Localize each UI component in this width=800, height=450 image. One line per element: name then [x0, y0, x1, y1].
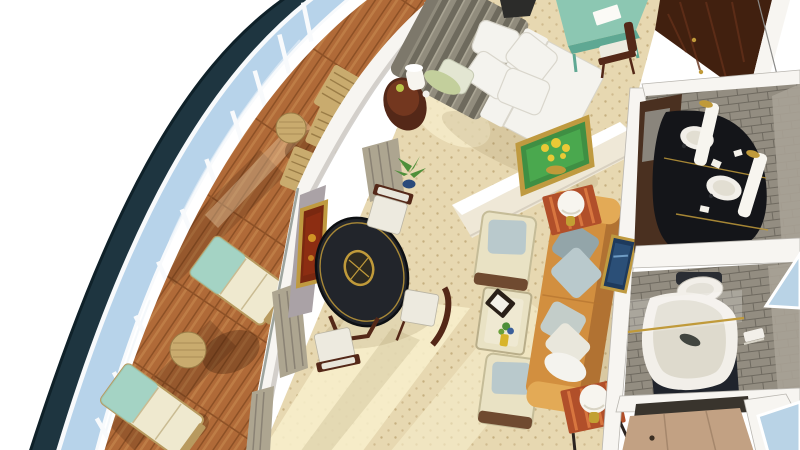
- glass-tumbler: [396, 84, 404, 92]
- tub-room: [616, 262, 800, 415]
- coffee-table: [476, 286, 532, 355]
- door-handle: [649, 435, 654, 440]
- deck-side-table: [170, 332, 206, 368]
- suite-cutaway-rendering: [0, 0, 800, 450]
- vanity-room: [632, 70, 800, 268]
- deck-side-table: [276, 113, 306, 143]
- cup: [423, 91, 430, 98]
- armchair: [473, 211, 537, 292]
